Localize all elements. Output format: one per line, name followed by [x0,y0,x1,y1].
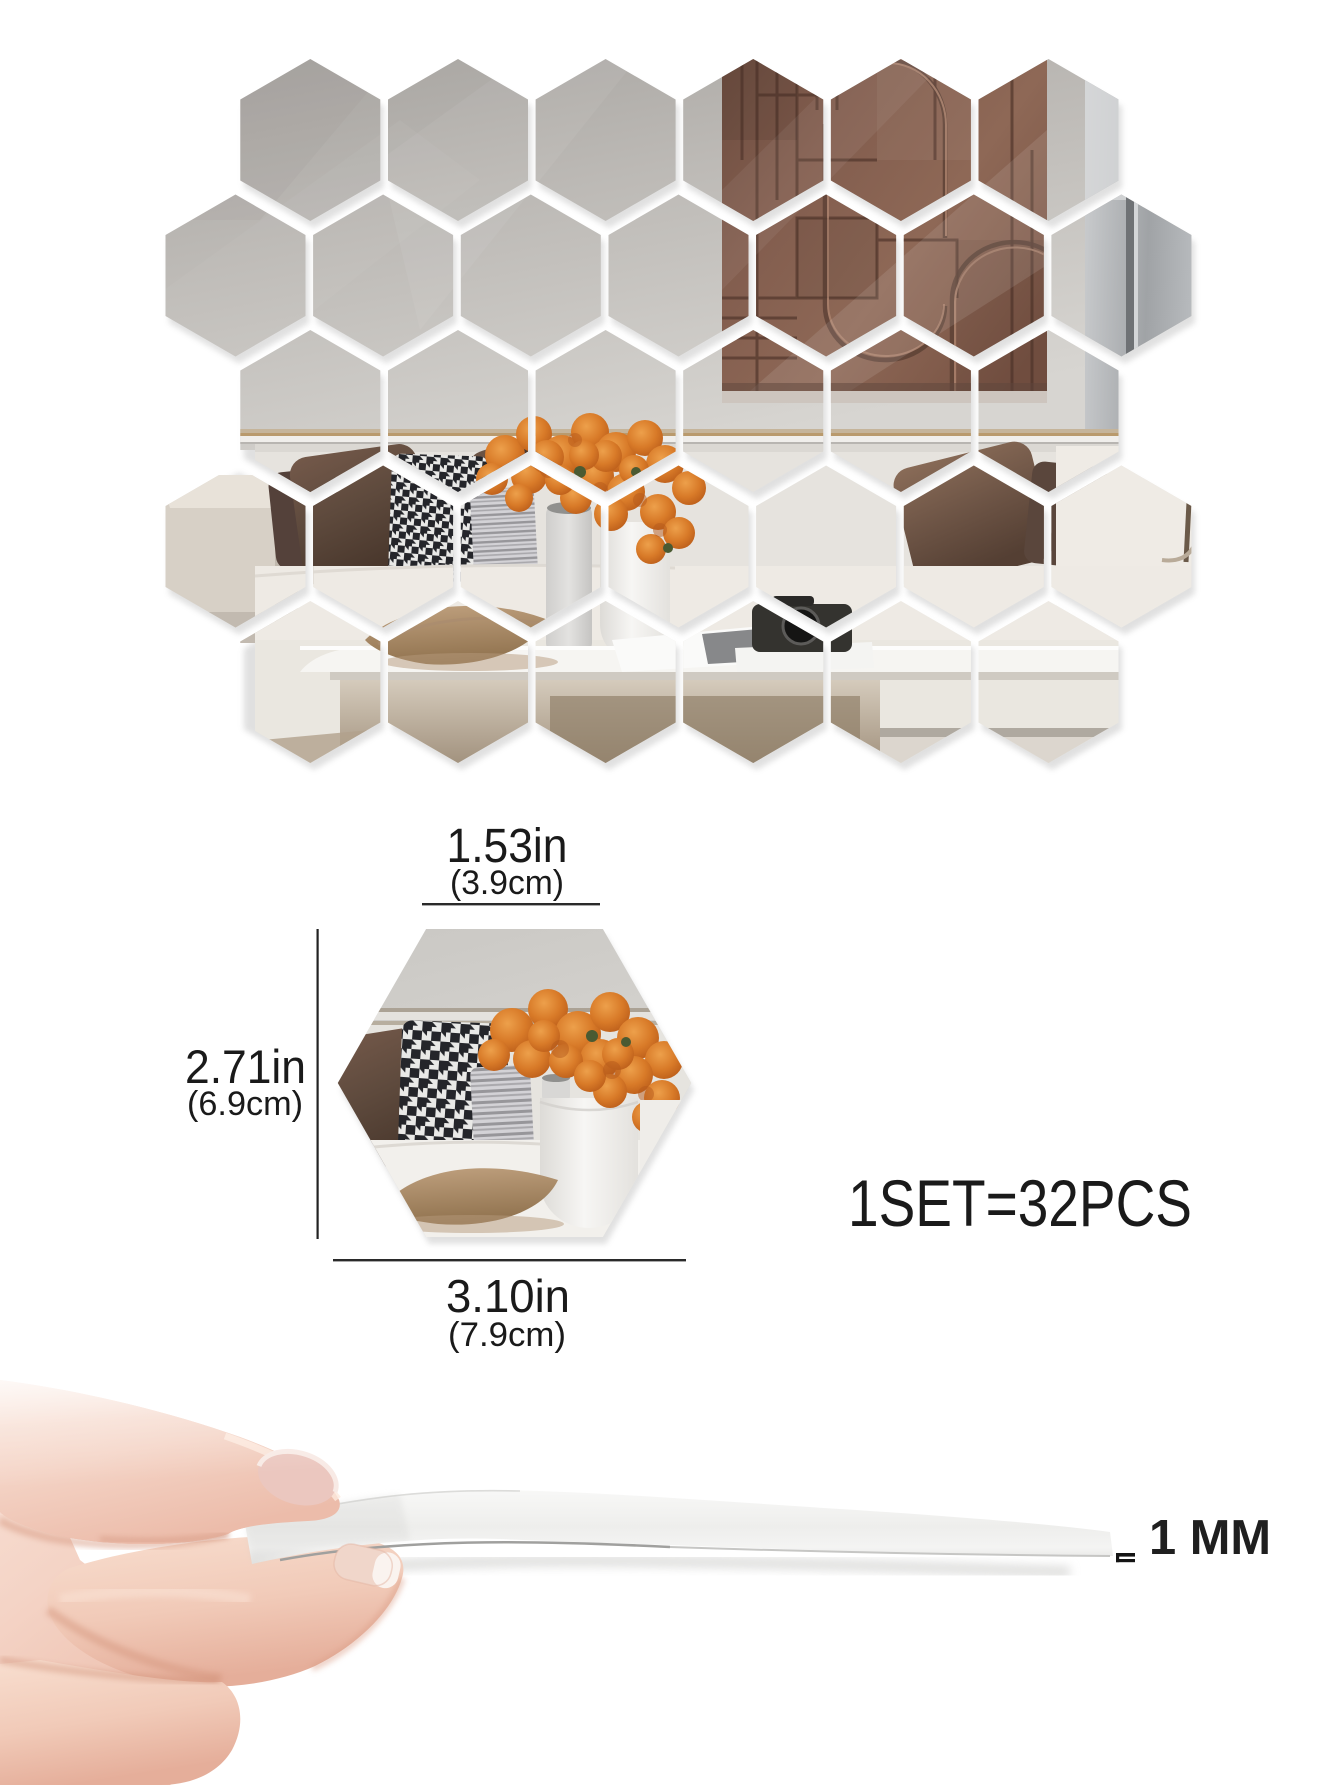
svg-text:1SET=32PCS: 1SET=32PCS [848,1166,1192,1240]
svg-text:(7.9cm): (7.9cm) [448,1316,566,1354]
svg-text:(3.9cm): (3.9cm) [450,864,564,902]
svg-text:(6.9cm): (6.9cm) [187,1085,303,1123]
svg-text:1 MM: 1 MM [1149,1511,1271,1565]
svg-text:3.10in: 3.10in [446,1270,570,1322]
